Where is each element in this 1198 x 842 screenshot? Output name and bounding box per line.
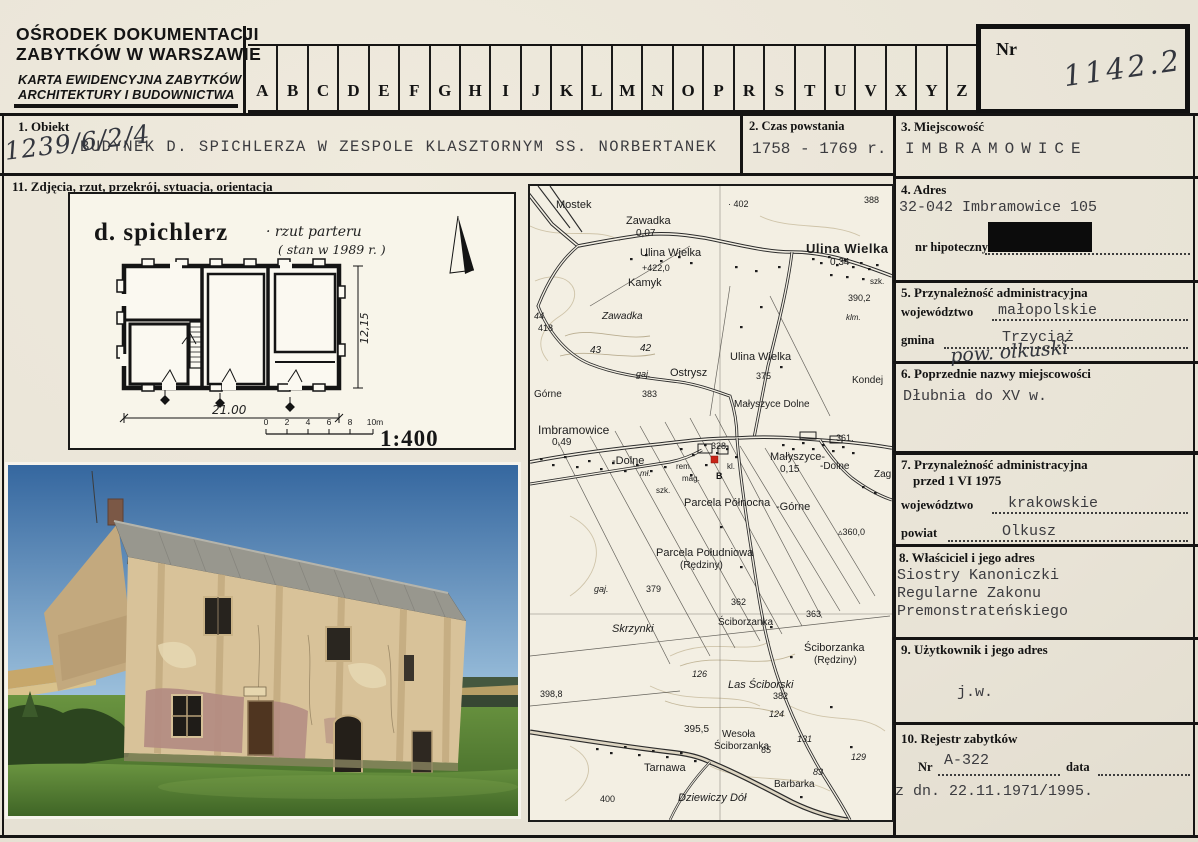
sep-s6 [893,451,1198,455]
org-name-line1: OŚRODEK DOKUMENTACJI [16,24,259,44]
map-label: kl. [727,463,735,471]
floor-plan-svg: d. spichlerz · rzut parteru ( stan w 198… [70,194,514,448]
rejestr-data-label: data [1066,760,1090,775]
topographic-map: B MostekZawadka0,07· 402388Ulina Wielka+… [528,184,894,822]
map-label: 418 [538,324,553,333]
scale-tick: 2 [285,417,290,427]
scale-bar [266,429,373,434]
map-label: Ulina Wielka [806,242,888,255]
map-label: ▵360,0 [838,528,865,537]
map-label: szk. [656,487,670,495]
map-label: Zawadka [602,312,643,322]
photo-svg [8,465,518,816]
map-label: 124 [769,710,784,719]
row1-bottom-line [0,173,896,176]
map-label: 379 [646,585,661,594]
map-label: Ulina Wielka [730,352,791,363]
map-label: klm. [846,314,861,322]
map-label: Wesoła [722,730,755,740]
alphabet-cell: Y [917,46,947,110]
alphabet-cell: O [674,46,704,110]
map-label: Mostek [556,200,591,211]
czas-value: 1758 - 1769 r. [752,140,886,158]
map-label: Zawadka [626,216,671,227]
grass-light-band [158,775,518,799]
map-label: +422,0 [642,264,670,273]
map-label: rem. [676,463,692,471]
map-label: 131 [797,735,812,744]
map-label: 42 [640,344,651,354]
powiat1975-dotted [948,539,1188,542]
frame-line-right [1193,113,1195,838]
wlasciciel-label: 8. Właściciel i jego adres [899,550,1035,566]
header-underline [14,104,238,108]
czas-label: 2. Czas powstania [749,119,845,134]
map-label: 362 [731,598,746,607]
adres-value: 32-042 Imbramowice 105 [899,199,1097,216]
map-label: Górne [534,390,562,400]
alphabet-cell: N [643,46,673,110]
map-label: mł. [640,470,651,478]
map-label: -Dolne [820,462,849,472]
map-label: 0,07 [636,229,655,239]
sep-s7 [893,544,1198,547]
alphabet-cell: M [613,46,643,110]
alphabet-cell: P [704,46,734,110]
admin1975-label-line1: 7. Przynależność administracyjna [901,457,1088,473]
scale-tick: 6 [327,417,332,427]
frame-line-left [2,113,4,838]
sep-s5 [893,361,1198,364]
sep-s8 [893,637,1198,640]
miejscowosc-label: 3. Miejscowość [901,119,984,135]
drawing-subtitle2: ( stan w 1989 r. ) [278,242,386,257]
drawing-scale: 1:400 [380,426,439,448]
alphabet-cell: X [887,46,917,110]
map-label: -Dolne [612,456,644,467]
map-label: 383 [642,390,657,399]
uzytkownik-value: j.w. [957,684,993,701]
dim-width: 21.00 [212,403,247,417]
poprzednie-label: 6. Poprzednie nazwy miejscowości [901,366,1091,382]
wlasciciel-line2: Regularne Zakonu [897,585,1041,602]
alphabet-cell: S [765,46,795,110]
hipoteczny-label: nr hipoteczny [915,240,988,255]
alphabet-cell: T [796,46,826,110]
alphabet-strip: ABCDEFGHIJKLMNOPRSTUVXYZ [248,44,976,114]
divider-row1 [740,113,743,176]
dim-height: 12,15 [358,313,371,345]
alphabet-cell: C [309,46,339,110]
map-label: Ulina Wielka [640,248,701,259]
rejestr-nr-value: A-322 [944,752,989,769]
map-label: 395,5 [684,725,709,735]
alphabet-cell: D [339,46,369,110]
rejestr-date-value: z dn. 22.11.1971/1995. [895,783,1093,800]
map-label: 0,34 [830,258,849,268]
map-label: -Górne [776,502,810,513]
admin-label: 5. Przynależność administracyjna [901,285,1088,301]
main-door [248,701,273,755]
drawing-title: d. spichlerz [94,219,228,246]
scale-tick: 8 [348,417,353,427]
map-label: · 402 [728,200,749,209]
admin1975-label-line2: przed 1 VI 1975 [913,473,1001,489]
poprzednie-value: Dłubnia do XV w. [903,388,1047,405]
alphabet-cell: K [552,46,582,110]
hipoteczny-dotted-line [985,252,1190,255]
map-label: Zag. [874,470,894,480]
rejestr-label: 10. Rejestr zabytków [901,731,1017,747]
map-label: Małyszyce Dolne [734,400,810,410]
map-label: 398,8 [540,690,563,699]
map-label: Dziewiczy Dół [678,793,746,804]
alphabet-cell: Z [948,46,976,110]
wlasciciel-line1: Siostry Kanoniczki [897,567,1059,584]
map-label: (Rędziny) [814,656,857,666]
map-label: 83 [813,768,823,777]
map-label: Imbramowice [538,424,609,436]
wojewodztwo-value: małopolskie [998,302,1097,319]
map-label: 129 [851,753,866,762]
map-label: Tarnawa [644,763,686,774]
sep-s9 [893,722,1198,725]
redaction-box [988,222,1092,252]
alphabet-cell: V [856,46,886,110]
map-label: Ściborzanka [718,618,773,628]
map-label: 126 [692,670,707,679]
map-label: mag. [682,475,700,483]
alphabet-cell: F [400,46,430,110]
rejestr-nr-label: Nr [918,760,933,775]
map-label: 382 [773,692,788,701]
record-card: OŚRODEK DOKUMENTACJI ZABYTKÓW W WARSZAWI… [0,0,1198,842]
map-label: gaj. [594,585,609,594]
map-label: 390,2 [848,294,871,303]
card-type-line1: KARTA EWIDENCYJNA ZABYTKÓW [18,72,241,87]
alphabet-cell: R [735,46,765,110]
map-label: 44 [534,312,544,321]
wojewodztwo1975-label: województwo [901,498,973,513]
map-label: Skrzynki [612,624,654,635]
alphabet-cell: U [826,46,856,110]
header-divider [243,26,246,114]
map-label: szk. [870,278,884,286]
wojewodztwo-label: województwo [901,305,973,320]
map-label: Parcela Północna [684,498,770,509]
wlasciciel-line3: Premonstrateńskiego [897,603,1068,620]
gmina-label: gmina [901,333,934,348]
plan-walls [117,259,345,391]
scale-tick: 4 [306,417,311,427]
map-label: 388 [864,196,879,205]
map-label: 43 [590,346,601,356]
miejscowosc-value: IMBRAMOWICE [905,140,1088,158]
card-type-line2: ARCHITEKTURY I BUDOWNICTWA [18,87,235,102]
nr-box: Nr 1142.2 [976,24,1190,114]
wojewodztwo1975-value: krakowskie [1008,495,1098,512]
map-label: 361. [836,434,854,443]
obiekt-value: BUDYNEK D. SPICHLERZA W ZESPOLE KLASZTOR… [80,138,717,156]
map-label: 400 [600,795,615,804]
drawing-subtitle1: · rzut parteru [266,224,362,240]
north-arrow-icon [450,216,474,274]
nr-label: Nr [996,39,1017,60]
alphabet-cell: H [461,46,491,110]
rejestr-data-dotted [1098,773,1190,776]
alphabet-cell: I [491,46,521,110]
sep-s3 [893,176,1198,179]
map-label: 65 [761,746,771,755]
map-labels: MostekZawadka0,07· 402388Ulina Wielka+42… [530,186,892,820]
map-label: Las Ściborski [728,680,793,691]
map-label: Małyszyce- [770,452,825,463]
rejestr-nr-dotted [938,773,1060,776]
map-label: Ostrysz [670,368,707,379]
map-label: Kamyk [628,278,662,289]
window-upper-right [326,627,351,661]
org-name-line2: ZABYTKÓW W WARSZAWIE [16,44,261,64]
alphabet-cell: L [583,46,613,110]
nr-value-handwritten: 1142.2 [1061,43,1184,93]
alphabet-cell: E [370,46,400,110]
adres-label: 4. Adres [901,182,946,198]
map-label: 363 [806,610,821,619]
door-plaque [244,687,266,696]
alphabet-cell: J [522,46,552,110]
map-label: Barbarka [774,780,815,790]
map-label: Kondej [852,376,883,386]
frame-line-bottom [0,835,1198,838]
powiat1975-label: powiat [901,526,937,541]
building-photograph [5,462,521,819]
alphabet-cell: G [431,46,461,110]
powiat1975-value: Olkusz [1002,523,1056,540]
scale-tick: 0 [264,417,269,427]
floor-plan-drawing: d. spichlerz · rzut parteru ( stan w 198… [68,192,516,450]
uzytkownik-label: 9. Użytkownik i jego adres [901,642,1048,658]
alphabet-cell: A [248,46,278,110]
sep-s4 [893,280,1198,283]
frame-line-top [0,113,1198,116]
map-label: 328 [711,442,726,451]
map-label: 375 [756,372,771,381]
wall-slot [404,655,414,681]
map-label: gaj. [636,370,651,379]
map-label: 0,15 [780,465,799,475]
map-label: (Rędziny) [680,561,723,571]
alphabet-cell: B [278,46,308,110]
map-label: Ściborzanka [804,643,865,654]
map-label: Parcela Południowa [656,548,753,559]
map-label: 0,49 [552,438,571,448]
